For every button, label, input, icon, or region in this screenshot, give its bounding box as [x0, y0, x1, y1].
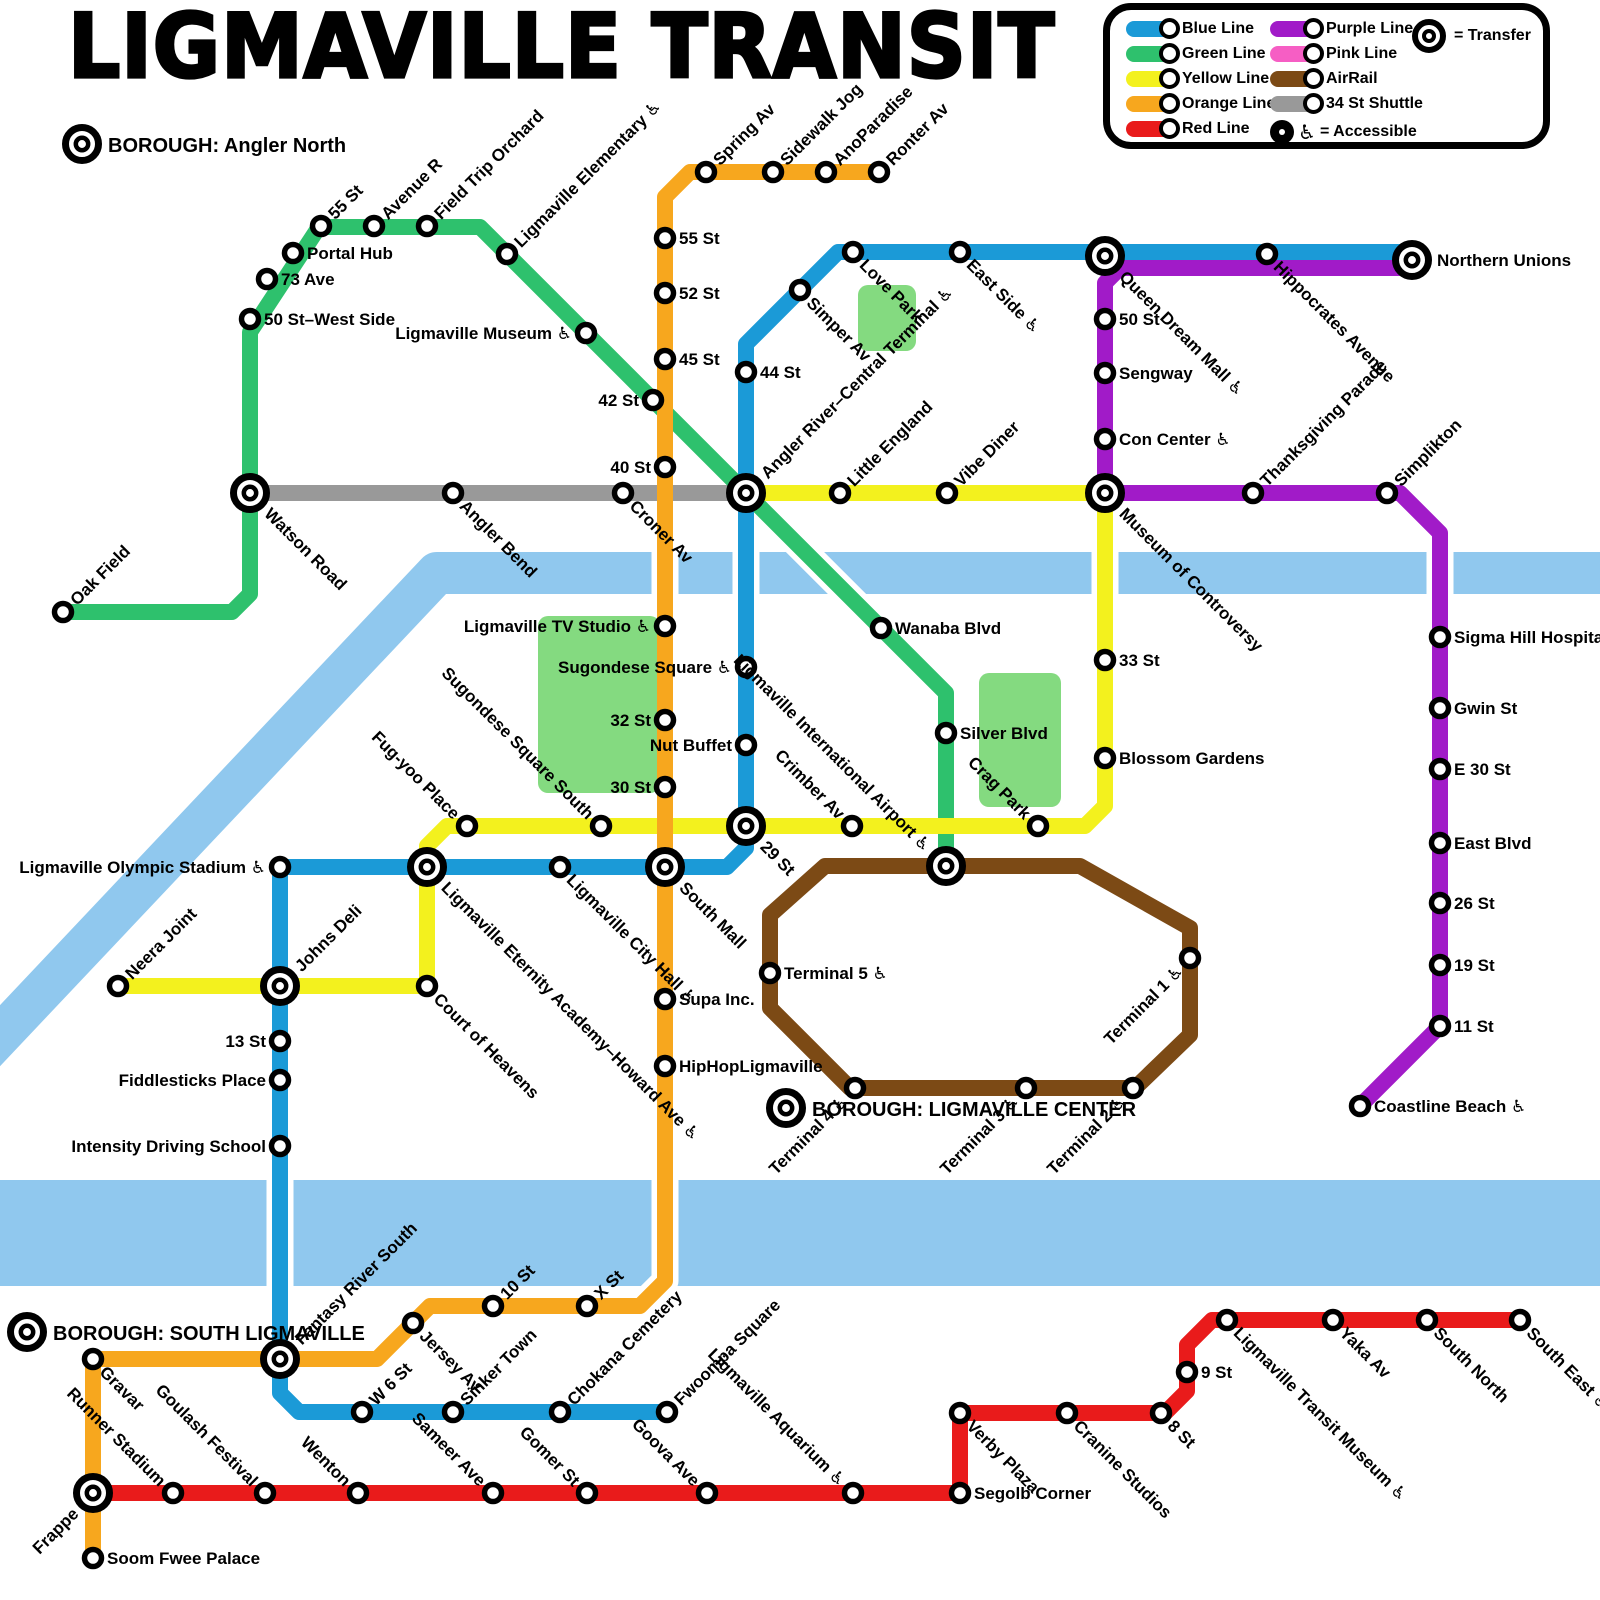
pink-line-swatch — [1270, 46, 1320, 62]
station-marker — [85, 1351, 102, 1368]
legend-entry: Green Line — [1126, 43, 1275, 64]
station-marker — [405, 1315, 422, 1332]
legend-entry-label: Purple Line — [1326, 20, 1413, 38]
station-label: East Side ♿ — [963, 256, 1045, 338]
yellow-line-swatch — [1126, 71, 1176, 87]
station-dot-icon — [1303, 68, 1324, 89]
station-marker — [419, 978, 436, 995]
station-marker — [1419, 1312, 1436, 1329]
purple-line-swatch — [1270, 21, 1320, 37]
station-marker — [1432, 700, 1449, 717]
station-marker — [762, 965, 779, 982]
station-marker — [272, 1072, 289, 1089]
station-dot-icon — [1159, 18, 1180, 39]
station-label: East Blvd — [1454, 834, 1531, 853]
legend-entry: Red Line — [1126, 118, 1275, 139]
wheelchair-icon: ♿ — [1298, 120, 1316, 144]
station-label: 50 St–West Side — [264, 310, 395, 329]
borough-label: BOROUGH: Angler North — [108, 135, 346, 157]
station-label: Gwin St — [1454, 699, 1518, 718]
station-marker — [272, 1033, 289, 1050]
station-label: Intensity Driving School — [71, 1137, 266, 1156]
station-label: Runner Stadium — [63, 1384, 169, 1490]
station-label: Northern Unions — [1437, 251, 1571, 270]
station-marker — [1097, 311, 1114, 328]
station-label: 30 St — [610, 778, 651, 797]
station-label: Fwoompa Square — [671, 1296, 785, 1410]
station-marker — [552, 1404, 569, 1421]
station-label: 9 St — [1201, 1363, 1233, 1382]
station-label: 40 St — [610, 458, 651, 477]
station-marker — [845, 1485, 862, 1502]
station-marker — [844, 818, 861, 835]
station-label: 29 St — [757, 837, 799, 879]
station-marker — [871, 164, 888, 181]
station-marker — [1325, 1312, 1342, 1329]
transfer-station-marker-inner — [740, 487, 752, 499]
station-marker — [445, 485, 462, 502]
station-label: 45 St — [679, 350, 720, 369]
station-dot-icon — [1303, 18, 1324, 39]
legend-entry-label: 34 St Shuttle — [1326, 95, 1423, 113]
transfer-station-marker-inner — [87, 1487, 99, 1499]
station-marker — [350, 1485, 367, 1502]
accessible-dot-icon — [1270, 120, 1294, 144]
sugondese-square-park — [538, 616, 660, 793]
station-marker — [242, 311, 259, 328]
station-marker — [1153, 1405, 1170, 1422]
station-marker — [1512, 1312, 1529, 1329]
borough-marker-inner — [76, 138, 88, 150]
station-marker — [579, 1298, 596, 1315]
station-marker — [645, 392, 662, 409]
station-marker — [1219, 1312, 1236, 1329]
station-marker — [1352, 1098, 1369, 1115]
station-marker — [285, 245, 302, 262]
legend-entry: Yellow Line — [1126, 68, 1275, 89]
station-label: Coastline Beach ♿ — [1374, 1097, 1526, 1116]
station-marker — [1059, 1405, 1076, 1422]
station-label: Thanksgiving Parade — [1257, 356, 1391, 490]
station-label: 44 St — [760, 363, 801, 382]
station-label: Terminal 5 ♿ — [784, 964, 888, 983]
station-marker — [738, 737, 755, 754]
station-label: Portal Hub — [307, 244, 393, 263]
station-marker — [272, 1138, 289, 1155]
station-label: Cranine Studios — [1070, 1417, 1176, 1523]
station-label: Field Trip Orchard — [431, 106, 548, 223]
borough-marker-inner — [21, 1326, 33, 1338]
transfer-station-marker-inner — [274, 1353, 286, 1365]
station-marker — [1432, 761, 1449, 778]
station-marker — [657, 351, 674, 368]
station-label: Con Center ♿ — [1119, 430, 1231, 449]
station-label: Ligmaville Aquarium ♿ — [704, 1345, 849, 1490]
legend-entry: Pink Line — [1270, 43, 1423, 64]
station-marker — [1097, 365, 1114, 382]
station-marker — [657, 779, 674, 796]
station-marker — [366, 218, 383, 235]
station-label: Silver Blvd — [960, 724, 1048, 743]
station-marker — [485, 1485, 502, 1502]
station-label: Little England — [844, 397, 937, 490]
station-marker — [445, 1404, 462, 1421]
legend-transfer-entry: = Transfer — [1412, 19, 1531, 53]
legend-column-2: Purple LinePink LineAirRail34 St Shuttle — [1270, 18, 1423, 114]
station-marker — [738, 364, 755, 381]
station-marker — [259, 271, 276, 288]
station-label: Simplikton — [1391, 415, 1466, 490]
station-marker — [1379, 485, 1396, 502]
station-marker — [313, 218, 330, 235]
station-marker — [55, 604, 72, 621]
station-marker — [1097, 750, 1114, 767]
station-marker — [657, 1058, 674, 1075]
station-marker — [499, 246, 516, 263]
station-label: 11 St — [1454, 1017, 1494, 1036]
transfer-station-marker-inner — [274, 980, 286, 992]
legend-entry-label: Orange Line — [1182, 95, 1275, 113]
station-label: Ligmaville TV Studio ♿ — [464, 617, 651, 636]
station-marker — [657, 991, 674, 1008]
station-label: Nut Buffet — [650, 736, 732, 755]
station-marker — [832, 485, 849, 502]
legend-transfer-label: = Transfer — [1454, 27, 1531, 45]
legend-entry: Orange Line — [1126, 93, 1275, 114]
station-marker — [873, 620, 890, 637]
station-label: 33 St — [1119, 651, 1160, 670]
station-marker — [1432, 835, 1449, 852]
station-marker — [952, 244, 969, 261]
station-marker — [657, 230, 674, 247]
station-marker — [1432, 895, 1449, 912]
station-marker — [552, 859, 569, 876]
station-dot-icon — [1159, 68, 1180, 89]
transfer-station-marker-inner — [659, 861, 671, 873]
station-marker — [952, 1405, 969, 1422]
station-label: Blossom Gardens — [1119, 749, 1265, 768]
station-marker — [698, 164, 715, 181]
station-marker — [765, 164, 782, 181]
station-label: Sugondese Square ♿ — [558, 658, 732, 677]
station-label: Watson Road — [261, 504, 351, 594]
station-label: Ligmaville Olympic Stadium ♿ — [19, 858, 266, 877]
station-label: Fiddlesticks Place — [119, 1071, 266, 1090]
station-marker — [939, 485, 956, 502]
station-label: 55 St — [679, 229, 720, 248]
station-marker — [1259, 246, 1276, 263]
station-label: Ligmaville Museum ♿ — [395, 324, 572, 343]
station-label: 73 Ave — [281, 270, 335, 289]
legend-entry: 34 St Shuttle — [1270, 93, 1423, 114]
station-marker — [110, 978, 127, 995]
station-label: Vibe Diner — [951, 417, 1024, 490]
transfer-station-marker-inner — [1099, 487, 1111, 499]
blue-line-swatch — [1126, 21, 1176, 37]
station-label: HipHopLigmaville — [679, 1057, 823, 1076]
borough-marker-inner — [780, 1102, 792, 1114]
brown-line-swatch — [1270, 71, 1320, 87]
station-label: Wanaba Blvd — [895, 619, 1001, 638]
station-marker — [1432, 957, 1449, 974]
station-marker — [485, 1298, 502, 1315]
transfer-station-marker-inner — [244, 487, 256, 499]
station-marker — [952, 1485, 969, 1502]
station-marker — [1432, 1018, 1449, 1035]
station-label: 13 St — [225, 1032, 266, 1051]
legend-entry-label: Yellow Line — [1182, 70, 1269, 88]
station-label: 19 St — [1454, 956, 1495, 975]
station-label: Goulash Festival — [152, 1381, 262, 1491]
station-label: Ligmaville Transit Museum ♿ — [1230, 1324, 1411, 1505]
station-label: E 30 St — [1454, 760, 1511, 779]
legend-entry-label: Pink Line — [1326, 45, 1397, 63]
station-dot-icon — [1303, 43, 1324, 64]
station-marker — [1097, 652, 1114, 669]
station-marker — [459, 818, 476, 835]
station-label: 26 St — [1454, 894, 1495, 913]
station-label: South Mall — [676, 878, 750, 952]
station-marker — [593, 818, 610, 835]
station-label: 50 St — [1119, 310, 1160, 329]
station-marker — [1125, 1080, 1142, 1097]
station-marker — [1097, 431, 1114, 448]
station-marker — [419, 218, 436, 235]
station-marker — [657, 618, 674, 635]
gray-line-swatch — [1270, 96, 1320, 112]
station-label: Soom Fwee Palace — [107, 1549, 260, 1568]
station-label: South East ♿ — [1523, 1324, 1600, 1414]
station-marker — [657, 712, 674, 729]
station-dot-icon — [1159, 93, 1180, 114]
station-marker — [1018, 1080, 1035, 1097]
station-marker — [659, 1404, 676, 1421]
borough-label: BOROUGH: SOUTH LIGMAVILLE — [53, 1323, 365, 1345]
transit-map-canvas: Oak FieldWatson Road50 St–West Side73 Av… — [0, 0, 1600, 1600]
station-label: Frappe — [29, 1504, 83, 1558]
legend: Blue LineGreen LineYellow LineOrange Lin… — [1103, 3, 1550, 149]
legend-entry: Purple Line — [1270, 18, 1423, 39]
transfer-station-marker-inner — [1099, 250, 1111, 262]
station-marker — [165, 1485, 182, 1502]
transit-map-page: Oak FieldWatson Road50 St–West Side73 Av… — [0, 0, 1600, 1600]
transfer-icon — [1412, 19, 1446, 53]
transfer-station-marker-inner — [740, 820, 752, 832]
orange-line-swatch — [1126, 96, 1176, 112]
station-marker — [847, 1080, 864, 1097]
station-label: 32 St — [610, 711, 651, 730]
station-marker — [845, 244, 862, 261]
legend-accessible-entry: ♿ = Accessible — [1270, 120, 1417, 144]
station-dot-icon — [1159, 118, 1180, 139]
legend-entry-label: Green Line — [1182, 45, 1266, 63]
station-marker — [579, 1485, 596, 1502]
station-marker — [699, 1485, 716, 1502]
station-label: South North — [1430, 1324, 1513, 1407]
transfer-station-marker-inner — [1406, 254, 1418, 266]
station-label: Goova Ave — [628, 1415, 703, 1490]
station-marker — [1432, 629, 1449, 646]
legend-entry-label: AirRail — [1326, 70, 1378, 88]
legend-column-1: Blue LineGreen LineYellow LineOrange Lin… — [1126, 18, 1275, 139]
station-label: Sengway — [1119, 364, 1193, 383]
station-marker — [354, 1404, 371, 1421]
borough-label: BOROUGH: LIGMAVILLE CENTER — [812, 1099, 1137, 1121]
station-label: 52 St — [679, 284, 720, 303]
station-marker — [1245, 485, 1262, 502]
station-marker — [657, 459, 674, 476]
legend-entry-label: Red Line — [1182, 120, 1250, 138]
station-label: Sigma Hill Hospital — [1454, 628, 1600, 647]
station-marker — [657, 285, 674, 302]
station-marker — [615, 485, 632, 502]
station-marker — [938, 725, 955, 742]
page-title: LIGMAVILLE TRANSIT — [68, 0, 1055, 99]
station-dot-icon — [1303, 93, 1324, 114]
station-label: Johns Deli — [291, 901, 365, 975]
transfer-station-marker-inner — [940, 860, 952, 872]
station-marker — [818, 164, 835, 181]
station-label: 42 St — [598, 391, 639, 410]
green-line-swatch — [1126, 46, 1176, 62]
station-label: Fug-yoo Place — [368, 728, 464, 824]
station-marker — [257, 1485, 274, 1502]
station-marker — [1030, 818, 1047, 835]
station-dot-icon — [1159, 43, 1180, 64]
station-marker — [792, 282, 809, 299]
transfer-station-marker-inner — [421, 861, 433, 873]
red-line-swatch — [1126, 121, 1176, 137]
station-marker — [1179, 1364, 1196, 1381]
station-label: Court of Heavens — [430, 990, 543, 1103]
legend-entry: Blue Line — [1126, 18, 1275, 39]
legend-entry-label: Blue Line — [1182, 20, 1254, 38]
station-marker — [578, 325, 595, 342]
station-marker — [1182, 950, 1199, 967]
legend-accessible-label: = Accessible — [1320, 123, 1417, 141]
legend-entry: AirRail — [1270, 68, 1423, 89]
station-marker — [85, 1550, 102, 1567]
station-marker — [272, 859, 289, 876]
